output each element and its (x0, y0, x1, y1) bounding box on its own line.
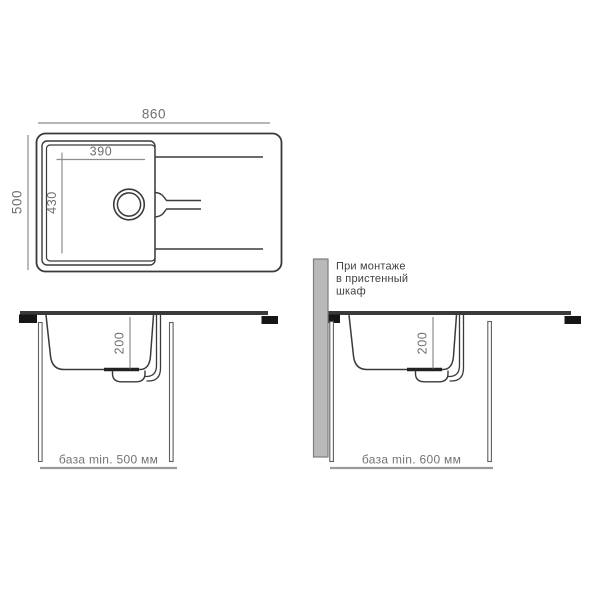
front-section-standard: 200 база min. 500 мм (19, 311, 278, 468)
cabinet-panel-left-wall (330, 322, 334, 462)
sink-section-standard (19, 311, 278, 382)
bowl-inner-edge (47, 145, 156, 261)
dim-label-depth-wall: 200 (416, 332, 430, 355)
wall-note-line-3: шкаф (336, 286, 366, 298)
drawing-canvas: 860 500 390 430 200 база min. 500 мм 200 (0, 0, 600, 600)
sink-section-wall (322, 311, 581, 382)
dim-label-depth-standard: 200 (113, 332, 127, 355)
dim-label-bowl-depth: 430 (45, 191, 59, 214)
faucet-channel-bottom (155, 209, 201, 217)
top-view: 860 500 390 430 (10, 107, 282, 272)
cabinet-panel-right (170, 323, 174, 462)
faucet-channel-top (155, 193, 201, 201)
base-note-wall: база min. 600 мм (362, 453, 461, 467)
dim-label-overall-width: 860 (142, 107, 166, 122)
dim-label-overall-depth: 500 (10, 190, 25, 214)
cabinet-wall (314, 259, 329, 457)
drain-hole-outer (114, 189, 145, 220)
wall-note-line-1: При монтаже (336, 261, 406, 273)
front-section-wall-cabinet: 200 база min. 600 мм При монтаже в прист… (314, 259, 582, 468)
cabinet-panel-left (39, 323, 43, 462)
base-note-standard: база min. 500 мм (59, 453, 158, 467)
sink-technical-drawing: 860 500 390 430 200 база min. 500 мм 200 (0, 0, 600, 600)
dim-label-bowl-width: 390 (90, 145, 113, 159)
sink-outline (37, 134, 282, 272)
wall-note-line-2: в пристенный (336, 273, 408, 285)
drain-hole-inner (117, 193, 140, 216)
cabinet-panel-right-wall (488, 322, 492, 462)
